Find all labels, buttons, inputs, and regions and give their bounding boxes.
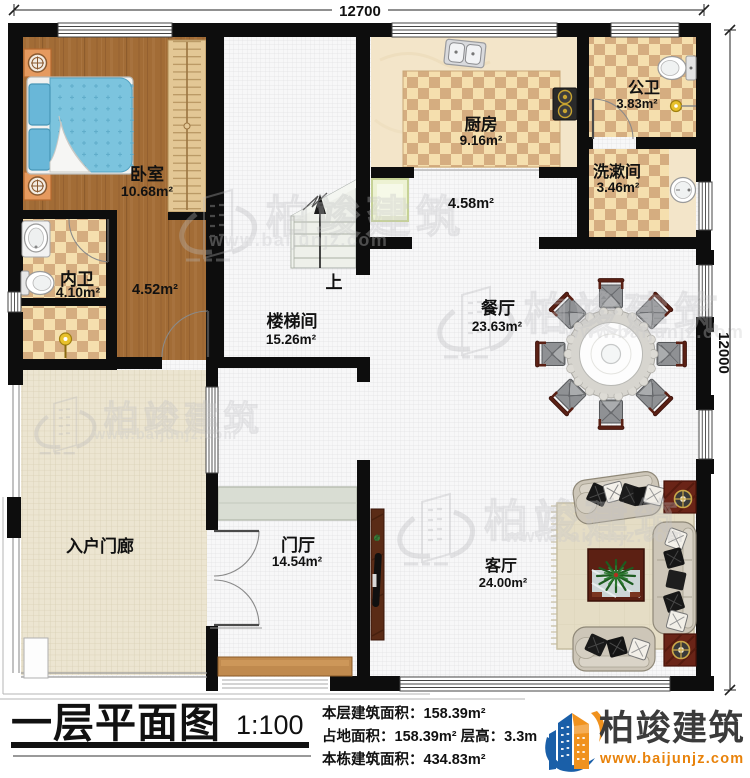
svg-text:23.63m²: 23.63m² xyxy=(472,319,523,334)
svg-text:24.00m²: 24.00m² xyxy=(479,575,528,590)
svg-text:占地面积：158.39m² 层高：3.3m: 占地面积：158.39m² 层高：3.3m xyxy=(322,727,537,745)
svg-text:一层平面图: 一层平面图 xyxy=(11,700,221,746)
svg-text:www.baijunjz.com: www.baijunjz.com xyxy=(208,230,388,250)
svg-text:www.baijunjz.com: www.baijunjz.com xyxy=(504,526,684,546)
svg-text:本层建筑面积：158.39m²: 本层建筑面积：158.39m² xyxy=(322,704,486,722)
svg-text:1:100: 1:100 xyxy=(236,710,304,740)
svg-text:10.68m²: 10.68m² xyxy=(121,183,173,199)
svg-text:厨房: 厨房 xyxy=(465,114,498,134)
svg-text:洗漱间: 洗漱间 xyxy=(593,162,641,181)
svg-text:入户门廊: 入户门廊 xyxy=(66,536,134,556)
svg-text:3.83m²: 3.83m² xyxy=(616,96,658,111)
svg-text:4.52m²: 4.52m² xyxy=(132,282,178,298)
svg-text:卧室: 卧室 xyxy=(130,164,164,184)
svg-text:餐厅: 餐厅 xyxy=(481,298,515,318)
svg-text:3.46m²: 3.46m² xyxy=(597,180,640,195)
svg-text:上: 上 xyxy=(326,273,343,292)
svg-text:楼梯间: 楼梯间 xyxy=(267,311,318,331)
svg-text:9.16m²: 9.16m² xyxy=(460,133,503,148)
svg-text:4.58m²: 4.58m² xyxy=(448,196,494,212)
svg-text:4.10m²: 4.10m² xyxy=(56,284,101,300)
svg-text:www.baijunjz.com: www.baijunjz.com xyxy=(93,427,237,443)
svg-text:柏竣建筑: 柏竣建筑 xyxy=(599,708,745,748)
svg-text:15.26m²: 15.26m² xyxy=(266,332,317,347)
svg-text:本栋建筑面积：434.83m²: 本栋建筑面积：434.83m² xyxy=(322,750,486,768)
svg-text:12700: 12700 xyxy=(339,3,381,20)
svg-text:公卫: 公卫 xyxy=(628,79,660,97)
svg-text:门厅: 门厅 xyxy=(281,535,315,555)
svg-text:12000: 12000 xyxy=(715,332,732,374)
svg-text:客厅: 客厅 xyxy=(485,556,517,575)
svg-text:14.54m²: 14.54m² xyxy=(272,554,323,569)
svg-text:www.baijunjz.com: www.baijunjz.com xyxy=(599,751,744,767)
